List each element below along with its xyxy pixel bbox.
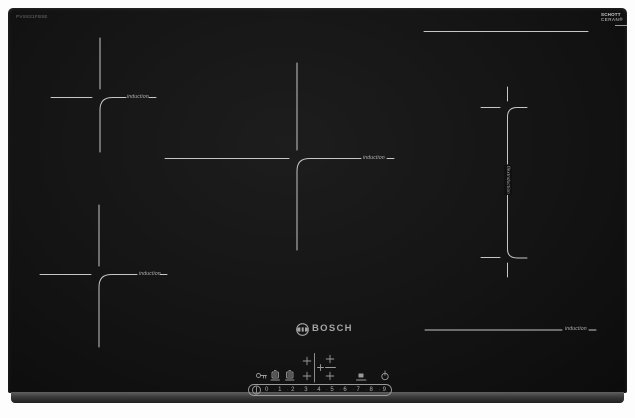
level-4: 4: [313, 386, 321, 394]
pot-timer-icon: [357, 374, 367, 381]
schott-ceran-logo: SCHOTT CERAN®: [601, 12, 627, 26]
bosch-logo: BOSCH: [294, 322, 353, 336]
zone-markings: [40, 32, 596, 348]
schott-logo-mark: [615, 25, 627, 27]
zone-front-right-label: induction: [565, 326, 587, 332]
level-7: 7: [352, 386, 360, 394]
zone-front-left-corner-line: [99, 275, 137, 348]
level-1: 1: [274, 386, 282, 394]
zone-select-map: [303, 354, 335, 383]
level-3: 3: [300, 386, 308, 394]
flex-zone-top-corner: [508, 108, 528, 165]
zone-rear-left-corner-line: [100, 98, 126, 153]
flex-zone-bottom-corner: [508, 240, 528, 258]
zone-rear-left-label: induction: [127, 94, 149, 100]
stopwatch-icon: [286, 371, 295, 380]
timer-icon: [271, 371, 280, 380]
bosch-wordmark: BOSCH: [312, 322, 353, 336]
zone-markings-layer: [0, 0, 635, 418]
level-9: 9: [378, 386, 386, 394]
power-icon: [382, 371, 388, 380]
schott-logo-line2: CERAN®: [601, 17, 627, 22]
zone-center-corner-line: [297, 159, 361, 251]
power-level-numbers: 0 1 2 3 4 5 6 7 8 9: [265, 386, 386, 394]
product-photo: PVS831FB5E SCHOTT CERAN® induction induc…: [0, 0, 635, 418]
flex-zone-label: flexInduction: [504, 165, 512, 195]
model-code-text: PVS831FB5E: [16, 14, 48, 19]
level-6: 6: [339, 386, 347, 394]
level-5: 5: [326, 386, 334, 394]
level-0: 0: [265, 386, 268, 394]
key-lock-icon: [257, 374, 267, 379]
level-8: 8: [365, 386, 373, 394]
level-2: 2: [287, 386, 295, 394]
zone-front-left-label: induction: [139, 271, 161, 277]
zone-center-label: induction: [363, 155, 385, 161]
